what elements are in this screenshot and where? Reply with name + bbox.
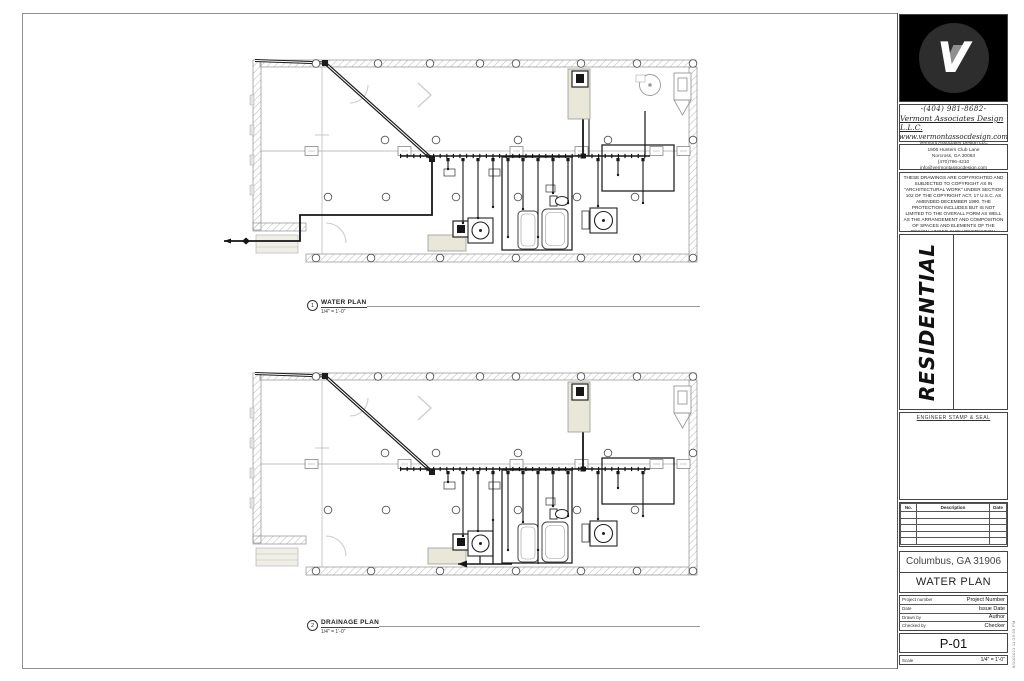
plan-scale: 1/4" = 1'-0" xyxy=(321,629,700,635)
project-type-empty-cell xyxy=(954,235,1007,409)
info-row-checked-by: Checked by Checker xyxy=(900,622,1007,630)
project-location: Columbus, GA 31906 xyxy=(900,552,1007,573)
engineer-stamp-label: ENGINEER STAMP & SEAL xyxy=(917,415,991,421)
contact-box: -(404) 981-8682- Vermont Associates Desi… xyxy=(899,104,1008,142)
plan-title: DRAINAGE PLAN xyxy=(321,619,379,628)
project-type-cell: RESIDENTIAL xyxy=(900,235,954,409)
scale-box: Scale 1/4" = 1'-0" xyxy=(899,655,1008,665)
plan-title-rule xyxy=(379,626,700,627)
info-value: Project Number xyxy=(967,597,1005,603)
drainage-plan-label: 2 DRAINAGE PLAN 1/4" = 1'-0" xyxy=(307,619,700,635)
sheet-title-box: Columbus, GA 31906 WATER PLAN xyxy=(899,551,1008,593)
title-block: V -(404) 981-8682- Vermont Associates De… xyxy=(897,13,1009,669)
sheet-number: P-01 xyxy=(899,633,1008,653)
info-label: Date xyxy=(902,605,912,611)
phone-number: -(404) 981-8682- xyxy=(921,105,987,113)
company-website: www.vermontassocdesign.com xyxy=(899,133,1008,141)
info-label: Checked by xyxy=(902,622,926,628)
scale-value: 1/4" = 1'-0" xyxy=(981,657,1005,663)
sheet-title: WATER PLAN xyxy=(900,573,1007,593)
company-name: Vermont Associates Design L.L.C. xyxy=(900,114,1007,132)
water-plan-drawing xyxy=(220,55,702,267)
info-value: Checker xyxy=(985,623,1005,629)
revision-row xyxy=(901,538,1007,545)
info-value: Issue Date xyxy=(979,606,1005,612)
plan-number-badge: 2 xyxy=(307,620,318,631)
address-box: Vermont Associates Design LLC 1906 Hunte… xyxy=(899,144,1008,170)
info-row-project-number: Project number Project Number xyxy=(900,596,1007,605)
plan-scale: 1/4" = 1'-0" xyxy=(321,309,700,315)
plan-title-rule xyxy=(367,306,701,307)
project-type-box: RESIDENTIAL xyxy=(899,234,1008,410)
scale-label: Scale xyxy=(902,658,913,663)
project-info-box: Project number Project Number Date Issue… xyxy=(899,595,1008,631)
logo-circle: V xyxy=(919,23,989,93)
revision-table: No. Description Date xyxy=(900,503,1007,545)
plan-number-badge: 1 xyxy=(307,300,318,311)
info-value: Author xyxy=(989,614,1005,620)
drainage-plan-drawing xyxy=(220,368,702,580)
project-type-text: RESIDENTIAL xyxy=(915,243,939,401)
info-label: Drawn by xyxy=(902,614,921,620)
plan-title: WATER PLAN xyxy=(321,299,367,308)
company-logo: V xyxy=(899,14,1008,102)
plot-timestamp: 8/10/2021 11:29:50 PM xyxy=(1011,596,1016,668)
drawing-sheet: 1 WATER PLAN 1/4" = 1'-0" 2 DRAINAGE PLA… xyxy=(0,0,1024,681)
info-label: Project number xyxy=(902,596,933,602)
rev-header-no: No. xyxy=(901,504,917,512)
rev-header-date: Date xyxy=(990,504,1007,512)
water-plan-label: 1 WATER PLAN 1/4" = 1'-0" xyxy=(307,299,700,315)
rev-header-desc: Description xyxy=(916,504,989,512)
info-row-date: Date Issue Date xyxy=(900,605,1007,614)
logo-letter: V xyxy=(937,37,970,79)
copyright-notice: THESE DRAWINGS ARE COPYRIGHTED AND SUBJE… xyxy=(899,172,1008,232)
engineer-stamp-box: ENGINEER STAMP & SEAL xyxy=(899,412,1008,500)
revision-table-box: No. Description Date xyxy=(899,502,1008,547)
info-row-drawn-by: Drawn by Author xyxy=(900,614,1007,623)
